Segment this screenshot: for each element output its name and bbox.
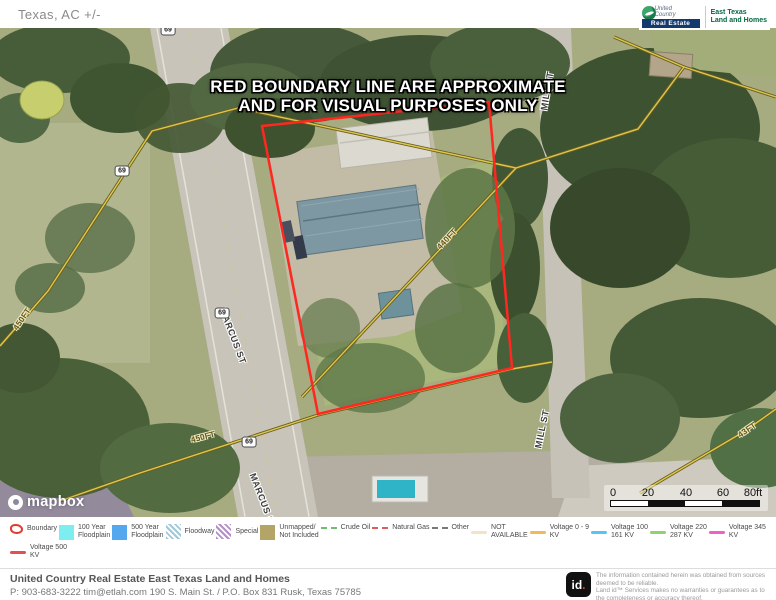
division-name: East Texas Land and Homes <box>711 9 767 26</box>
map-canvas[interactable]: RED BOUNDARY LINE ARE APPROXIMATE AND FO… <box>0 28 776 517</box>
legend-label: Floodway <box>185 528 215 536</box>
legend-item: NOT AVAILABLE <box>471 524 528 540</box>
legend-swatch-dash <box>432 527 448 529</box>
legend-label: Voltage 500 KV <box>30 544 67 560</box>
legend-label: Natural Gas <box>392 524 429 532</box>
legend-label: Voltage 100 161 KV <box>611 524 648 540</box>
legend-label: 100 Year Floodplain <box>78 524 110 540</box>
legend-swatch-line <box>709 531 725 534</box>
legend-item: Crude Oil <box>321 524 371 532</box>
legend-item: Voltage 220 287 KV <box>650 524 707 540</box>
footer-bar: United Country Real Estate East Texas La… <box>0 568 776 600</box>
footer-address: 190 S. Main St. / P.O. Box 831 Rusk, Tex… <box>150 587 361 598</box>
legend-swatch-hatch <box>166 524 181 539</box>
map-scale-bar: 0 20 40 60 80ft <box>604 485 768 511</box>
scale-tick: 40 <box>680 487 692 499</box>
scale-segments <box>610 500 760 507</box>
page: Texas, AC +/- UnitedCountry Real Estate … <box>0 0 776 600</box>
legend-swatch-line <box>591 531 607 534</box>
globe-icon <box>642 6 656 20</box>
legend-swatch-boundary <box>10 524 23 534</box>
route-69-shield-icon: 69 <box>215 308 230 319</box>
footer-phone: P: 903-683-3222 <box>10 587 81 598</box>
legend-swatch-line <box>650 531 666 534</box>
legend-label: Unmapped/ Not Included <box>279 524 318 540</box>
scale-tick: 0 <box>610 487 616 499</box>
footer-email: tim@etlah.com <box>83 587 147 598</box>
legend-swatch-hatch <box>216 524 231 539</box>
legend-item: 100 Year Floodplain <box>59 524 110 540</box>
footer-disclaimer: The information contained herein was obt… <box>596 572 768 600</box>
company-logo: UnitedCountry Real Estate East Texas Lan… <box>639 4 770 30</box>
route-69-shield-icon: 69 <box>115 166 130 177</box>
legend-item: Boundary <box>10 524 57 534</box>
legend-item: Voltage 100 161 KV <box>591 524 648 540</box>
legend-item: Natural Gas <box>372 524 429 532</box>
legend-item: 500 Year Floodplain <box>112 524 163 540</box>
legend-item: Special <box>216 524 258 539</box>
legend-item: Voltage 345 KV <box>709 524 766 540</box>
legend-swatch-dash <box>372 527 388 529</box>
legend-item: Other <box>432 524 470 532</box>
land-id-logo: id. <box>566 572 591 597</box>
legend-swatch-fill <box>112 525 127 540</box>
legend-swatch-line <box>471 531 487 534</box>
mapbox-icon <box>8 495 23 510</box>
page-title: Texas, AC +/- <box>18 7 101 22</box>
legend-label: Voltage 220 287 KV <box>670 524 707 540</box>
legend-item: Floodway <box>166 524 215 539</box>
legend-item: Voltage 500 KV <box>10 544 67 560</box>
legend-swatch-fill <box>59 525 74 540</box>
route-69-shield-icon: 69 <box>161 28 176 36</box>
legend-label: Crude Oil <box>341 524 371 532</box>
uc-logo-text: UnitedCountry <box>655 6 676 18</box>
scale-tick: 20 <box>642 487 654 499</box>
scale-tick: 80ft <box>744 487 762 499</box>
map-legend: Boundary100 Year Floodplain500 Year Floo… <box>0 517 776 568</box>
legend-swatch-line <box>530 531 546 534</box>
real-estate-banner: Real Estate <box>642 19 700 28</box>
mapbox-wordmark: mapbox <box>27 494 84 510</box>
legend-label: Voltage 0 - 9 KV <box>550 524 589 540</box>
united-country-logo-icon: UnitedCountry Real Estate <box>642 6 700 28</box>
scale-tick-labels: 0 20 40 60 80ft <box>609 487 763 500</box>
land-id-block: id. The information contained herein was… <box>566 572 768 600</box>
brand-divider <box>705 6 706 28</box>
legend-label: Special <box>235 528 258 536</box>
route-69-shield-icon: 69 <box>242 437 257 448</box>
legend-swatch-dash <box>321 527 337 529</box>
legend-label: NOT AVAILABLE <box>491 524 528 540</box>
satellite-imagery <box>0 28 776 517</box>
legend-label: 500 Year Floodplain <box>131 524 163 540</box>
legend-label: Boundary <box>27 525 57 533</box>
scale-tick: 60 <box>717 487 729 499</box>
legend-swatch-line <box>10 551 26 554</box>
legend-item: Unmapped/ Not Included <box>260 524 318 540</box>
mapbox-attribution[interactable]: mapbox <box>8 494 84 510</box>
legend-label: Other <box>452 524 470 532</box>
legend-label: Voltage 345 KV <box>729 524 766 540</box>
legend-swatch-fill <box>260 525 275 540</box>
legend-item: Voltage 0 - 9 KV <box>530 524 589 540</box>
